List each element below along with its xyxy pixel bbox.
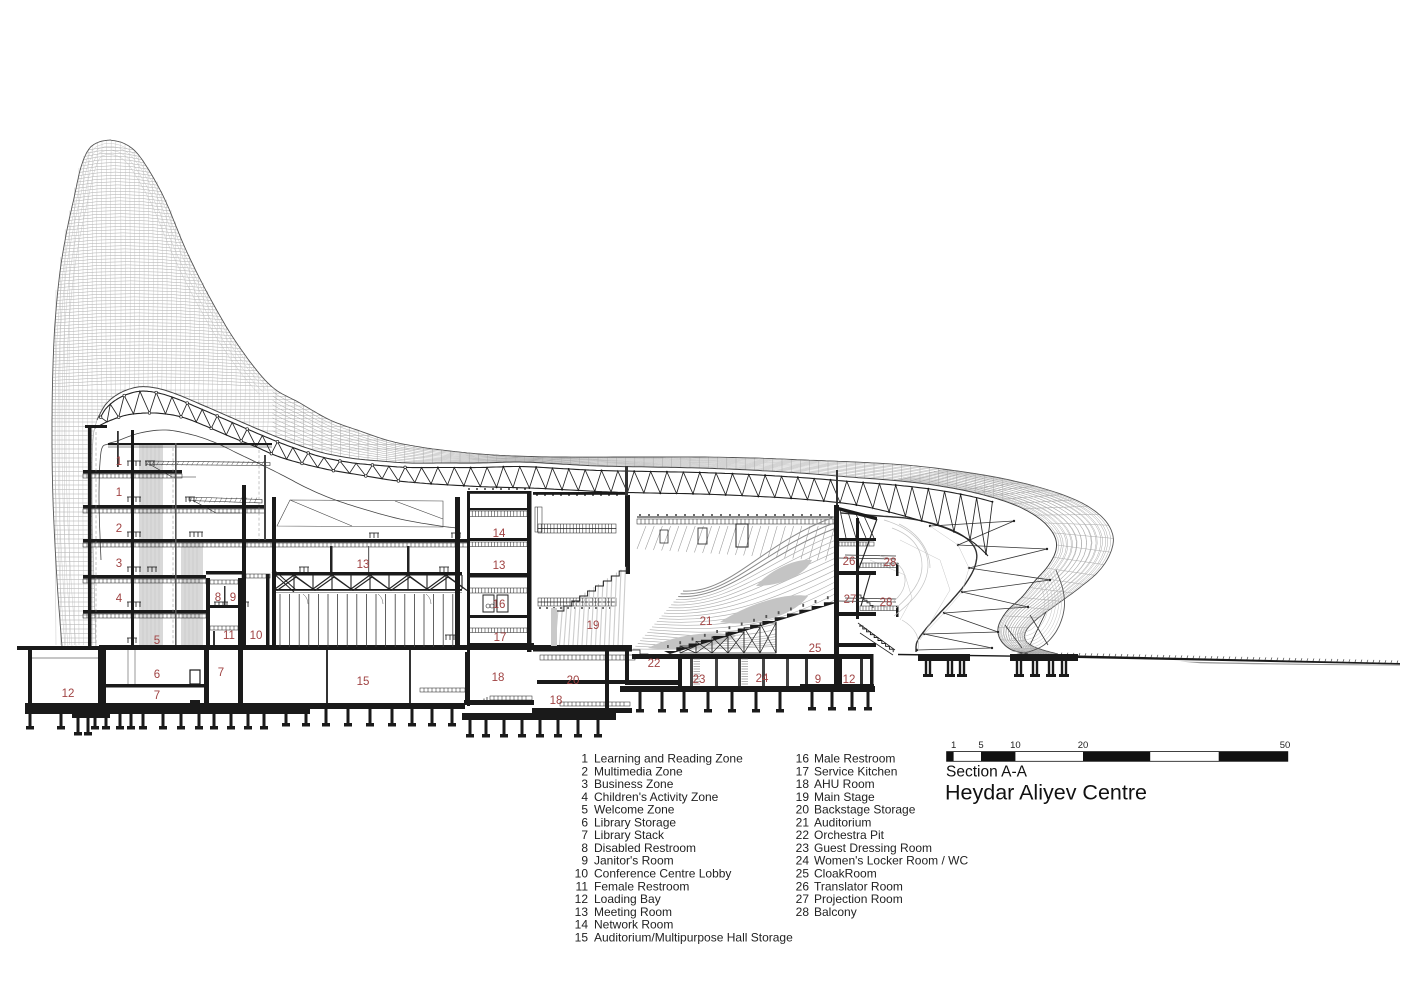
svg-text:4: 4 [116, 593, 123, 605]
svg-text:1: 1 [951, 740, 956, 751]
svg-text:24: 24 [756, 673, 769, 685]
svg-text:Auditorium/Multipurpose Hall S: Auditorium/Multipurpose Hall Storage [594, 930, 793, 944]
svg-text:7: 7 [154, 690, 160, 702]
svg-text:28: 28 [796, 905, 810, 919]
svg-text:20: 20 [567, 675, 580, 687]
svg-text:2: 2 [116, 523, 122, 535]
svg-text:13: 13 [493, 560, 506, 572]
svg-text:12: 12 [843, 674, 856, 686]
svg-text:13: 13 [357, 559, 370, 571]
svg-text:25: 25 [809, 643, 822, 655]
svg-text:17: 17 [494, 632, 507, 644]
svg-text:8: 8 [215, 592, 221, 604]
svg-text:50: 50 [1280, 740, 1291, 751]
svg-text:Balcony: Balcony [814, 905, 857, 919]
svg-text:28: 28 [884, 557, 897, 569]
svg-text:18: 18 [492, 672, 505, 684]
svg-text:19: 19 [587, 620, 600, 632]
svg-text:20: 20 [1078, 740, 1089, 751]
svg-text:Heydar Aliyev Centre: Heydar Aliyev Centre [945, 781, 1147, 805]
svg-text:1: 1 [116, 487, 122, 499]
svg-text:16: 16 [493, 599, 506, 611]
svg-text:9: 9 [815, 674, 821, 686]
svg-text:7: 7 [218, 667, 224, 679]
svg-text:28: 28 [880, 597, 893, 609]
svg-text:9: 9 [230, 592, 236, 604]
svg-text:27: 27 [844, 594, 857, 606]
svg-text:6: 6 [154, 669, 160, 681]
svg-text:12: 12 [62, 688, 75, 700]
svg-text:5: 5 [978, 740, 983, 751]
svg-text:11: 11 [223, 630, 235, 642]
svg-text:3: 3 [116, 558, 122, 570]
svg-text:15: 15 [357, 676, 370, 688]
svg-text:14: 14 [493, 528, 506, 540]
svg-text:10: 10 [1010, 740, 1021, 751]
svg-text:Section A-A: Section A-A [946, 764, 1028, 781]
svg-text:15: 15 [575, 930, 589, 944]
svg-text:21: 21 [700, 616, 713, 628]
svg-text:1: 1 [116, 456, 122, 468]
svg-text:26: 26 [843, 556, 856, 568]
svg-text:5: 5 [154, 635, 160, 647]
svg-text:22: 22 [648, 658, 661, 670]
svg-text:23: 23 [693, 674, 706, 686]
svg-text:10: 10 [250, 630, 263, 642]
svg-text:18: 18 [550, 695, 563, 707]
